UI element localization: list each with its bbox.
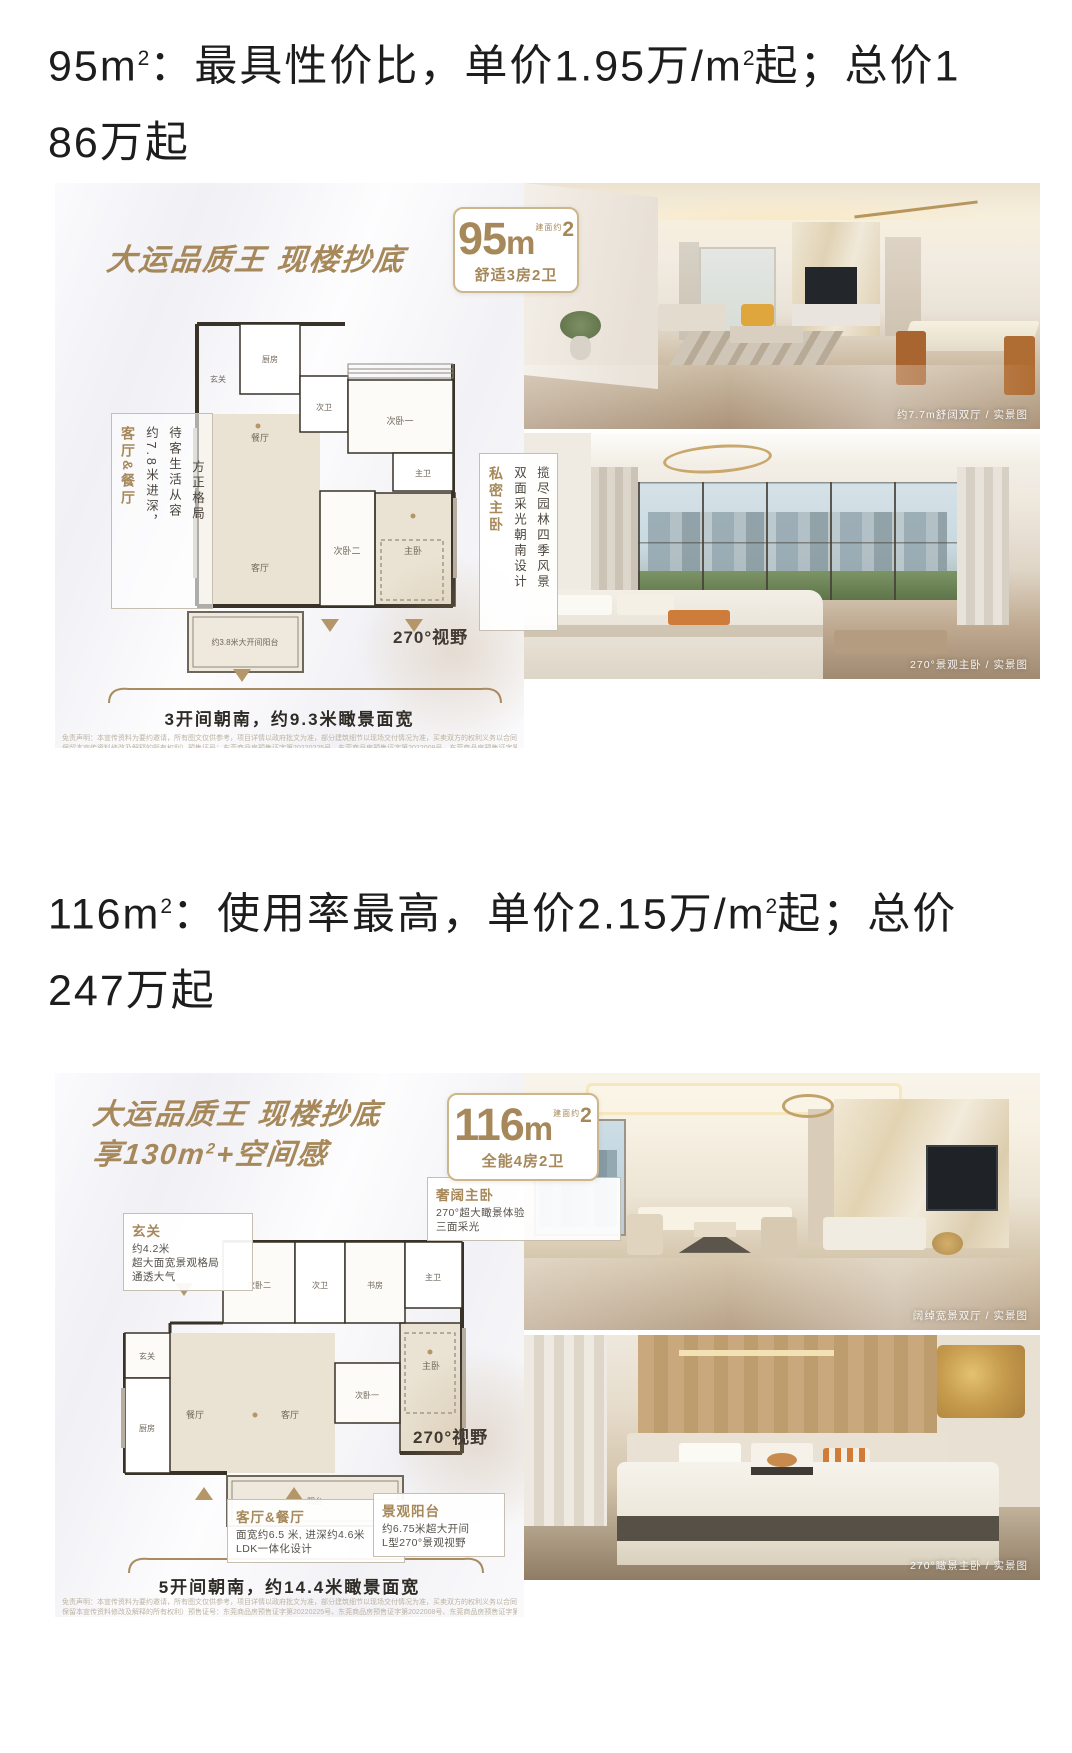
dark-throw	[617, 1516, 999, 1541]
photo-caption: 270°景观主卧 / 实景图	[910, 657, 1028, 672]
pillow	[617, 595, 674, 615]
south-arrow-icon	[195, 1487, 213, 1500]
room-label-bed1: 次卧一	[386, 415, 413, 426]
breakfast-tray	[751, 1467, 813, 1474]
disclaimer-line: 免责声明：本宣传资料为要约邀请，所有图文仅供参考，项目详情以政府批文为准，部分建…	[62, 1597, 517, 1607]
badge-area-value: 95m建面约2	[455, 216, 577, 261]
promo-subtitle-text: 享130m	[91, 1139, 208, 1171]
brace-decoration	[103, 681, 507, 705]
room-label-dining: 餐厅	[186, 1409, 204, 1420]
callout-master-bedroom-116: 奢阔主卧 270°超大瞰景体验 三面采光	[427, 1177, 621, 1241]
callout-title: 玄关	[132, 1220, 244, 1240]
disclaimer-line: 保留本宣传资料修改及解释的所有权利）预售证号：东莞商品房预售证字第2022022…	[62, 1607, 517, 1617]
width-note: 5开间朝南，约14.4米瞰景面宽	[55, 1573, 524, 1598]
superscript-2: 2	[766, 895, 778, 918]
room-label-dining: 餐厅	[251, 432, 269, 443]
room-label-mbath: 主卫	[415, 468, 431, 478]
badge-unit: m	[524, 1112, 553, 1145]
superscript-2: 2	[743, 47, 755, 70]
headline-text: 起；总价	[777, 890, 957, 938]
dining-chair	[627, 1214, 663, 1255]
callout-text: 约7.8米进深，	[142, 426, 159, 596]
south-arrow-icon	[321, 619, 339, 632]
headline-95: 95m2：最具性价比，单价1.95万/m2起；总价186万起	[48, 20, 1042, 182]
photo-column-116: 阔绰宽景双厅 / 实景图 270°瞰景主卧 / 实景图	[524, 1073, 1040, 1580]
badge-unit: m	[506, 226, 535, 259]
dining-chair	[694, 1222, 735, 1237]
room-label-bath2: 次卫	[316, 402, 332, 412]
headline-text: 起；总价1	[755, 42, 961, 90]
room-label-balcony: 约3.8米大开间阳台	[211, 637, 278, 647]
headline-text: ：使用率最高，单价2.15万/m	[172, 890, 765, 938]
south-arrow-icon	[405, 619, 423, 632]
callout-title: 私密主卧	[487, 466, 504, 618]
room-label-mbath: 主卫	[425, 1272, 441, 1282]
room-label-study: 书房	[367, 1280, 383, 1290]
callout-text: LDK一体化设计	[236, 1542, 396, 1556]
callout-private-master-95: 私密主卧 双面采光朝南设计 揽尽园林四季风景	[479, 453, 558, 631]
promo-subtitle-text: +空间感	[215, 1139, 330, 1171]
pendant-ring-light	[782, 1094, 834, 1118]
room-label-bath2: 次卫	[312, 1280, 328, 1290]
ceiling	[524, 433, 1040, 463]
room-label-bed1: 次卧一	[355, 1390, 379, 1400]
room-label-foyer: 玄关	[210, 374, 226, 384]
ceiling-light	[679, 1350, 834, 1356]
badge-superscript: 2	[580, 1105, 592, 1126]
callout-text: 面宽约6.5 米, 进深约4.6米	[236, 1528, 396, 1542]
curtain	[524, 1335, 607, 1526]
area-badge-95: 95m建面约2 舒适3房2卫	[453, 207, 579, 293]
room-label-bed2: 次卧二	[333, 545, 360, 556]
badge-number: 116	[454, 1102, 524, 1147]
photo-master-bedroom-95: 270°景观主卧 / 实景图	[524, 433, 1040, 679]
coffee-bench	[730, 326, 802, 343]
photo-master-bedroom-116: 270°瞰景主卧 / 实景图	[524, 1335, 1040, 1580]
badge-area-value: 116m建面约2	[449, 1102, 597, 1147]
accent-armchair	[741, 304, 775, 326]
callout-text: 揽尽园林四季风景	[533, 466, 550, 618]
photo-column-95: 约7.7m舒阔双厅 / 实景图 270°景观主卧 / 实景图	[524, 183, 1040, 679]
duvet-fold	[524, 625, 823, 637]
room-label-kitchen: 厨房	[262, 354, 278, 364]
callout-title: 景观阳台	[382, 1500, 496, 1520]
callout-title: 奢阔主卧	[436, 1184, 612, 1204]
badge-superscript: 2	[562, 219, 574, 240]
callout-text: 约4.2米	[132, 1242, 244, 1256]
callout-text: 通透大气	[132, 1270, 244, 1284]
badge-approx-label: 建面约	[535, 224, 562, 232]
headline-text-line2: 247万起	[48, 967, 216, 1015]
bed	[617, 1462, 999, 1565]
callout-text: 超大面宽景观格局	[132, 1256, 244, 1270]
photo-caption: 约7.7m舒阔双厅 / 实景图	[897, 407, 1028, 422]
promo-subtitle: 享130m2+空间感	[91, 1131, 331, 1173]
tv-console	[792, 304, 880, 326]
gold-side-table	[932, 1232, 963, 1255]
pillow	[555, 595, 612, 615]
photo-living-room-95: 约7.7m舒阔双厅 / 实景图	[524, 183, 1040, 429]
headline-text-line2: 86万起	[48, 119, 190, 167]
view-270-label: 270°视野	[413, 1423, 488, 1448]
headline-text: 116m	[48, 890, 160, 938]
promo-image-116[interactable]: 大运品质王 现楼抄底 享130m2+空间感	[55, 1073, 1040, 1617]
badge-subtitle: 舒适3房2卫	[455, 264, 577, 285]
headline-116: 116m2：使用率最高，单价2.15万/m2起；总价247万起	[48, 868, 1042, 1030]
callout-living-dining-95: 客厅&餐厅 约7.8米进深， 待客生活从容 方正格局	[111, 413, 213, 609]
window-mullions	[638, 482, 958, 600]
bench	[834, 630, 948, 655]
vase	[570, 336, 591, 361]
tv-screen	[805, 267, 857, 304]
callout-text: 270°超大瞰景体验	[436, 1206, 612, 1220]
callout-text: 约6.75米超大开间	[382, 1522, 496, 1536]
promo-image-95[interactable]: 大运品质王 现楼抄底	[55, 183, 1040, 748]
area-badge-116: 116m建面约2 全能4房2卫	[447, 1093, 599, 1181]
photo-caption: 270°瞰景主卧 / 实景图	[910, 1558, 1028, 1573]
callout-text: 待客生活从容	[165, 426, 182, 596]
room-label-living: 客厅	[281, 1409, 299, 1420]
headline-text: ：最具性价比，单价1.95万/m	[149, 42, 742, 90]
promo-title: 大运品质王 现楼抄底	[105, 235, 408, 279]
room-label-foyer: 玄关	[139, 1351, 155, 1361]
callout-title: 客厅&餐厅	[236, 1506, 396, 1526]
sofa	[823, 1217, 926, 1250]
room-label-kitchen: 厨房	[139, 1423, 155, 1433]
callout-text: 方正格局	[188, 460, 205, 596]
tv-screen	[926, 1145, 997, 1211]
badge-subtitle: 全能4房2卫	[449, 1150, 597, 1171]
callout-text: L型270°景观视野	[382, 1536, 496, 1550]
callout-title: 客厅&餐厅	[119, 426, 136, 596]
gold-art-piece	[937, 1345, 1025, 1419]
callout-text: 双面采光朝南设计	[510, 466, 527, 618]
superscript-2: 2	[138, 47, 150, 70]
badge-number: 95	[458, 216, 506, 261]
headline-text: 95m	[48, 42, 138, 90]
callout-balcony-116: 景观阳台 约6.75米超大开间 L型270°景观视野	[373, 1493, 505, 1557]
orange-throw	[668, 610, 730, 625]
sofa	[658, 304, 725, 331]
photo-caption: 阔绰宽景双厅 / 实景图	[913, 1308, 1028, 1323]
callout-foyer-116: 玄关 约4.2米 超大面宽景观格局 通透大气	[123, 1213, 253, 1291]
dining-chair	[761, 1217, 797, 1258]
room-label-living: 客厅	[251, 562, 269, 573]
superscript-2: 2	[160, 895, 172, 918]
room-label-master: 主卧	[404, 545, 422, 556]
curtain-right	[957, 467, 1009, 624]
badge-approx-label: 建面约	[553, 1110, 580, 1118]
callout-text: 三面采光	[436, 1220, 612, 1234]
promo-title: 大运品质王 现楼抄底	[91, 1091, 384, 1133]
